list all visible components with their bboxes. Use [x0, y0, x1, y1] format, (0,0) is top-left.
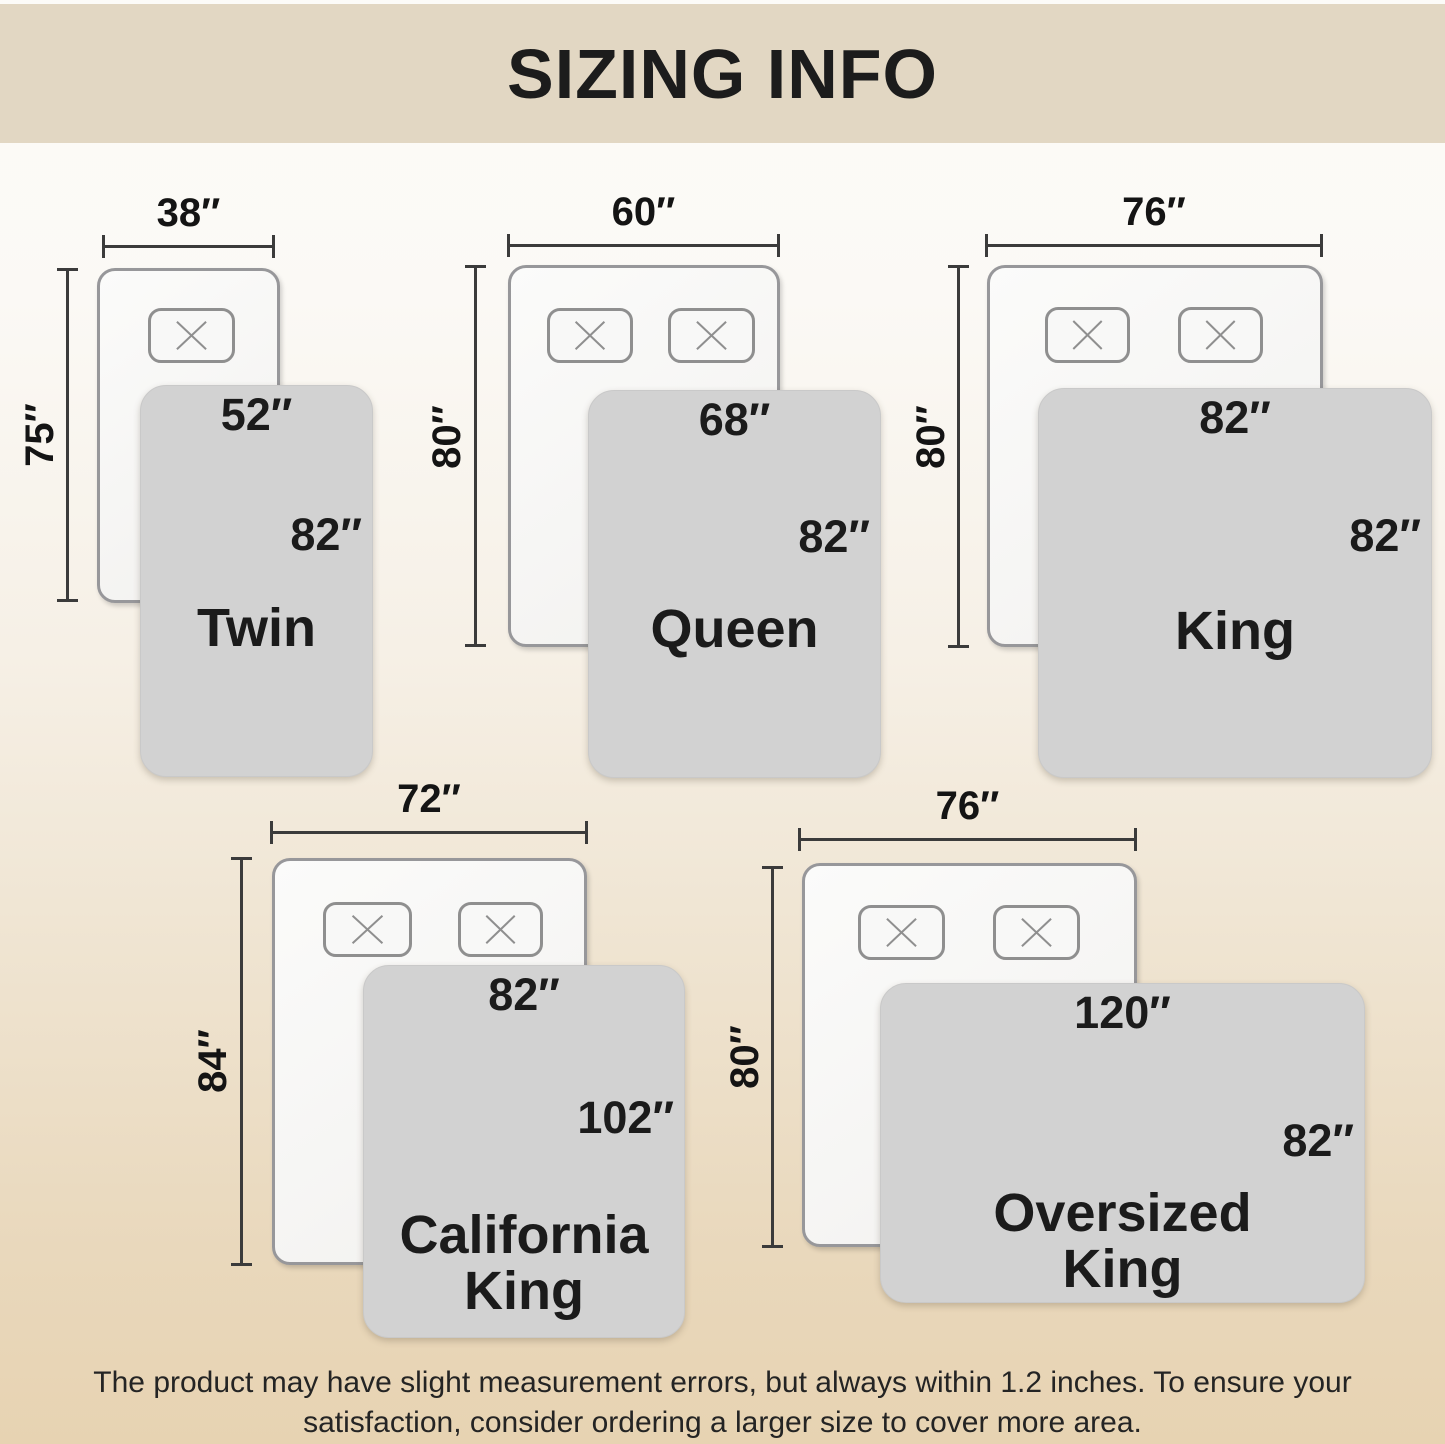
mattress: [987, 265, 1323, 647]
mattress-width-label: 72″: [270, 779, 588, 819]
blanket-height-label: 82″: [1349, 513, 1421, 558]
mattress-width-dimension: 60″: [507, 244, 780, 247]
pillow-x-icon: [326, 905, 409, 954]
mattress-height-label: 80″: [427, 406, 467, 468]
blanket: 52″ 82″ Twin: [140, 385, 373, 777]
blanket-height-label: 82″: [1282, 1118, 1354, 1163]
blanket-width-label: 120″: [881, 990, 1364, 1035]
bed-diagram-twin: 38″ 75″ 52″ 82″ Twin: [0, 0, 1445, 1444]
mattress-width-dimension: 76″: [798, 838, 1137, 841]
mattress-height-label: 80″: [725, 1026, 765, 1088]
pillow: [993, 905, 1080, 960]
mattress-width-dimension: 38″: [102, 245, 275, 248]
mattress-width-label: 76″: [985, 192, 1323, 232]
bed-size-name: Oversized King: [881, 1185, 1364, 1297]
mattress-height-dimension: [240, 857, 243, 1266]
bed-size-name: California King: [364, 1207, 684, 1319]
disclaimer-text: The product may have slight measurement …: [0, 1363, 1445, 1443]
pillow: [458, 902, 543, 957]
pillow: [148, 308, 235, 363]
pillow-x-icon: [996, 908, 1077, 957]
mattress: [802, 863, 1137, 1247]
pillow-x-icon: [1181, 310, 1260, 360]
mattress-width-label: 76″: [798, 786, 1137, 826]
pillow-x-icon: [151, 311, 232, 360]
mattress-height-dimension: [957, 265, 960, 648]
bed-diagram-oversized-king: 76″ 80″ 120″ 82″ Oversized King: [0, 0, 1445, 1444]
pillow: [1045, 307, 1130, 363]
pillow: [323, 902, 412, 957]
blanket-width-label: 82″: [1039, 395, 1431, 440]
sizing-info-infographic: SIZING INFO 38″ 75″ 52″ 82″ Twin 60″: [0, 0, 1445, 1444]
mattress: [508, 265, 780, 647]
blanket-width-label: 68″: [589, 397, 880, 442]
bed-size-name: King: [1039, 603, 1431, 659]
mattress-height-label: 75″: [20, 404, 60, 466]
disclaimer-line-1: The product may have slight measurement …: [0, 1363, 1445, 1403]
pillow-x-icon: [461, 905, 540, 954]
disclaimer-line-2: satisfaction, consider ordering a larger…: [0, 1403, 1445, 1443]
pillow: [858, 905, 945, 960]
blanket: 82″ 102″ California King: [363, 965, 685, 1338]
bed-size-name: Twin: [141, 600, 372, 656]
bed-size-name: Queen: [589, 601, 880, 657]
blanket-height-label: 82″: [798, 514, 870, 559]
bed-diagram-california-king: 72″ 84″ 82″ 102″ California King: [0, 0, 1445, 1444]
pillow-x-icon: [1048, 310, 1127, 360]
blanket: 68″ 82″ Queen: [588, 390, 881, 778]
pillow-x-icon: [671, 311, 752, 360]
pillow: [668, 308, 755, 363]
blanket: 120″ 82″ Oversized King: [880, 983, 1365, 1303]
mattress-height-label: 84″: [193, 1030, 233, 1092]
mattress: [97, 268, 280, 603]
blanket-width-label: 52″: [141, 392, 372, 437]
mattress-height-dimension: [474, 265, 477, 647]
bed-diagram-king: 76″ 80″ 82″ 82″ King: [0, 0, 1445, 1444]
blanket-height-label: 102″: [577, 1095, 674, 1140]
pillow: [547, 308, 633, 363]
mattress-width-label: 38″: [102, 193, 275, 233]
page-title: SIZING INFO: [507, 34, 938, 114]
mattress-height-label: 80″: [911, 406, 951, 468]
blanket: 82″ 82″ King: [1038, 388, 1432, 778]
mattress-width-label: 60″: [507, 192, 780, 232]
pillow-x-icon: [861, 908, 942, 957]
pillow: [1178, 307, 1263, 363]
mattress: [272, 858, 587, 1265]
blanket-width-label: 82″: [364, 972, 684, 1017]
header-banner: SIZING INFO: [0, 4, 1445, 143]
bed-diagram-queen: 60″ 80″ 68″ 82″ Queen: [0, 0, 1445, 1444]
mattress-width-dimension: 72″: [270, 831, 588, 834]
mattress-height-dimension: [771, 866, 774, 1248]
mattress-height-dimension: [66, 268, 69, 602]
mattress-width-dimension: 76″: [985, 244, 1323, 247]
pillow-x-icon: [550, 311, 630, 360]
blanket-height-label: 82″: [290, 512, 362, 557]
